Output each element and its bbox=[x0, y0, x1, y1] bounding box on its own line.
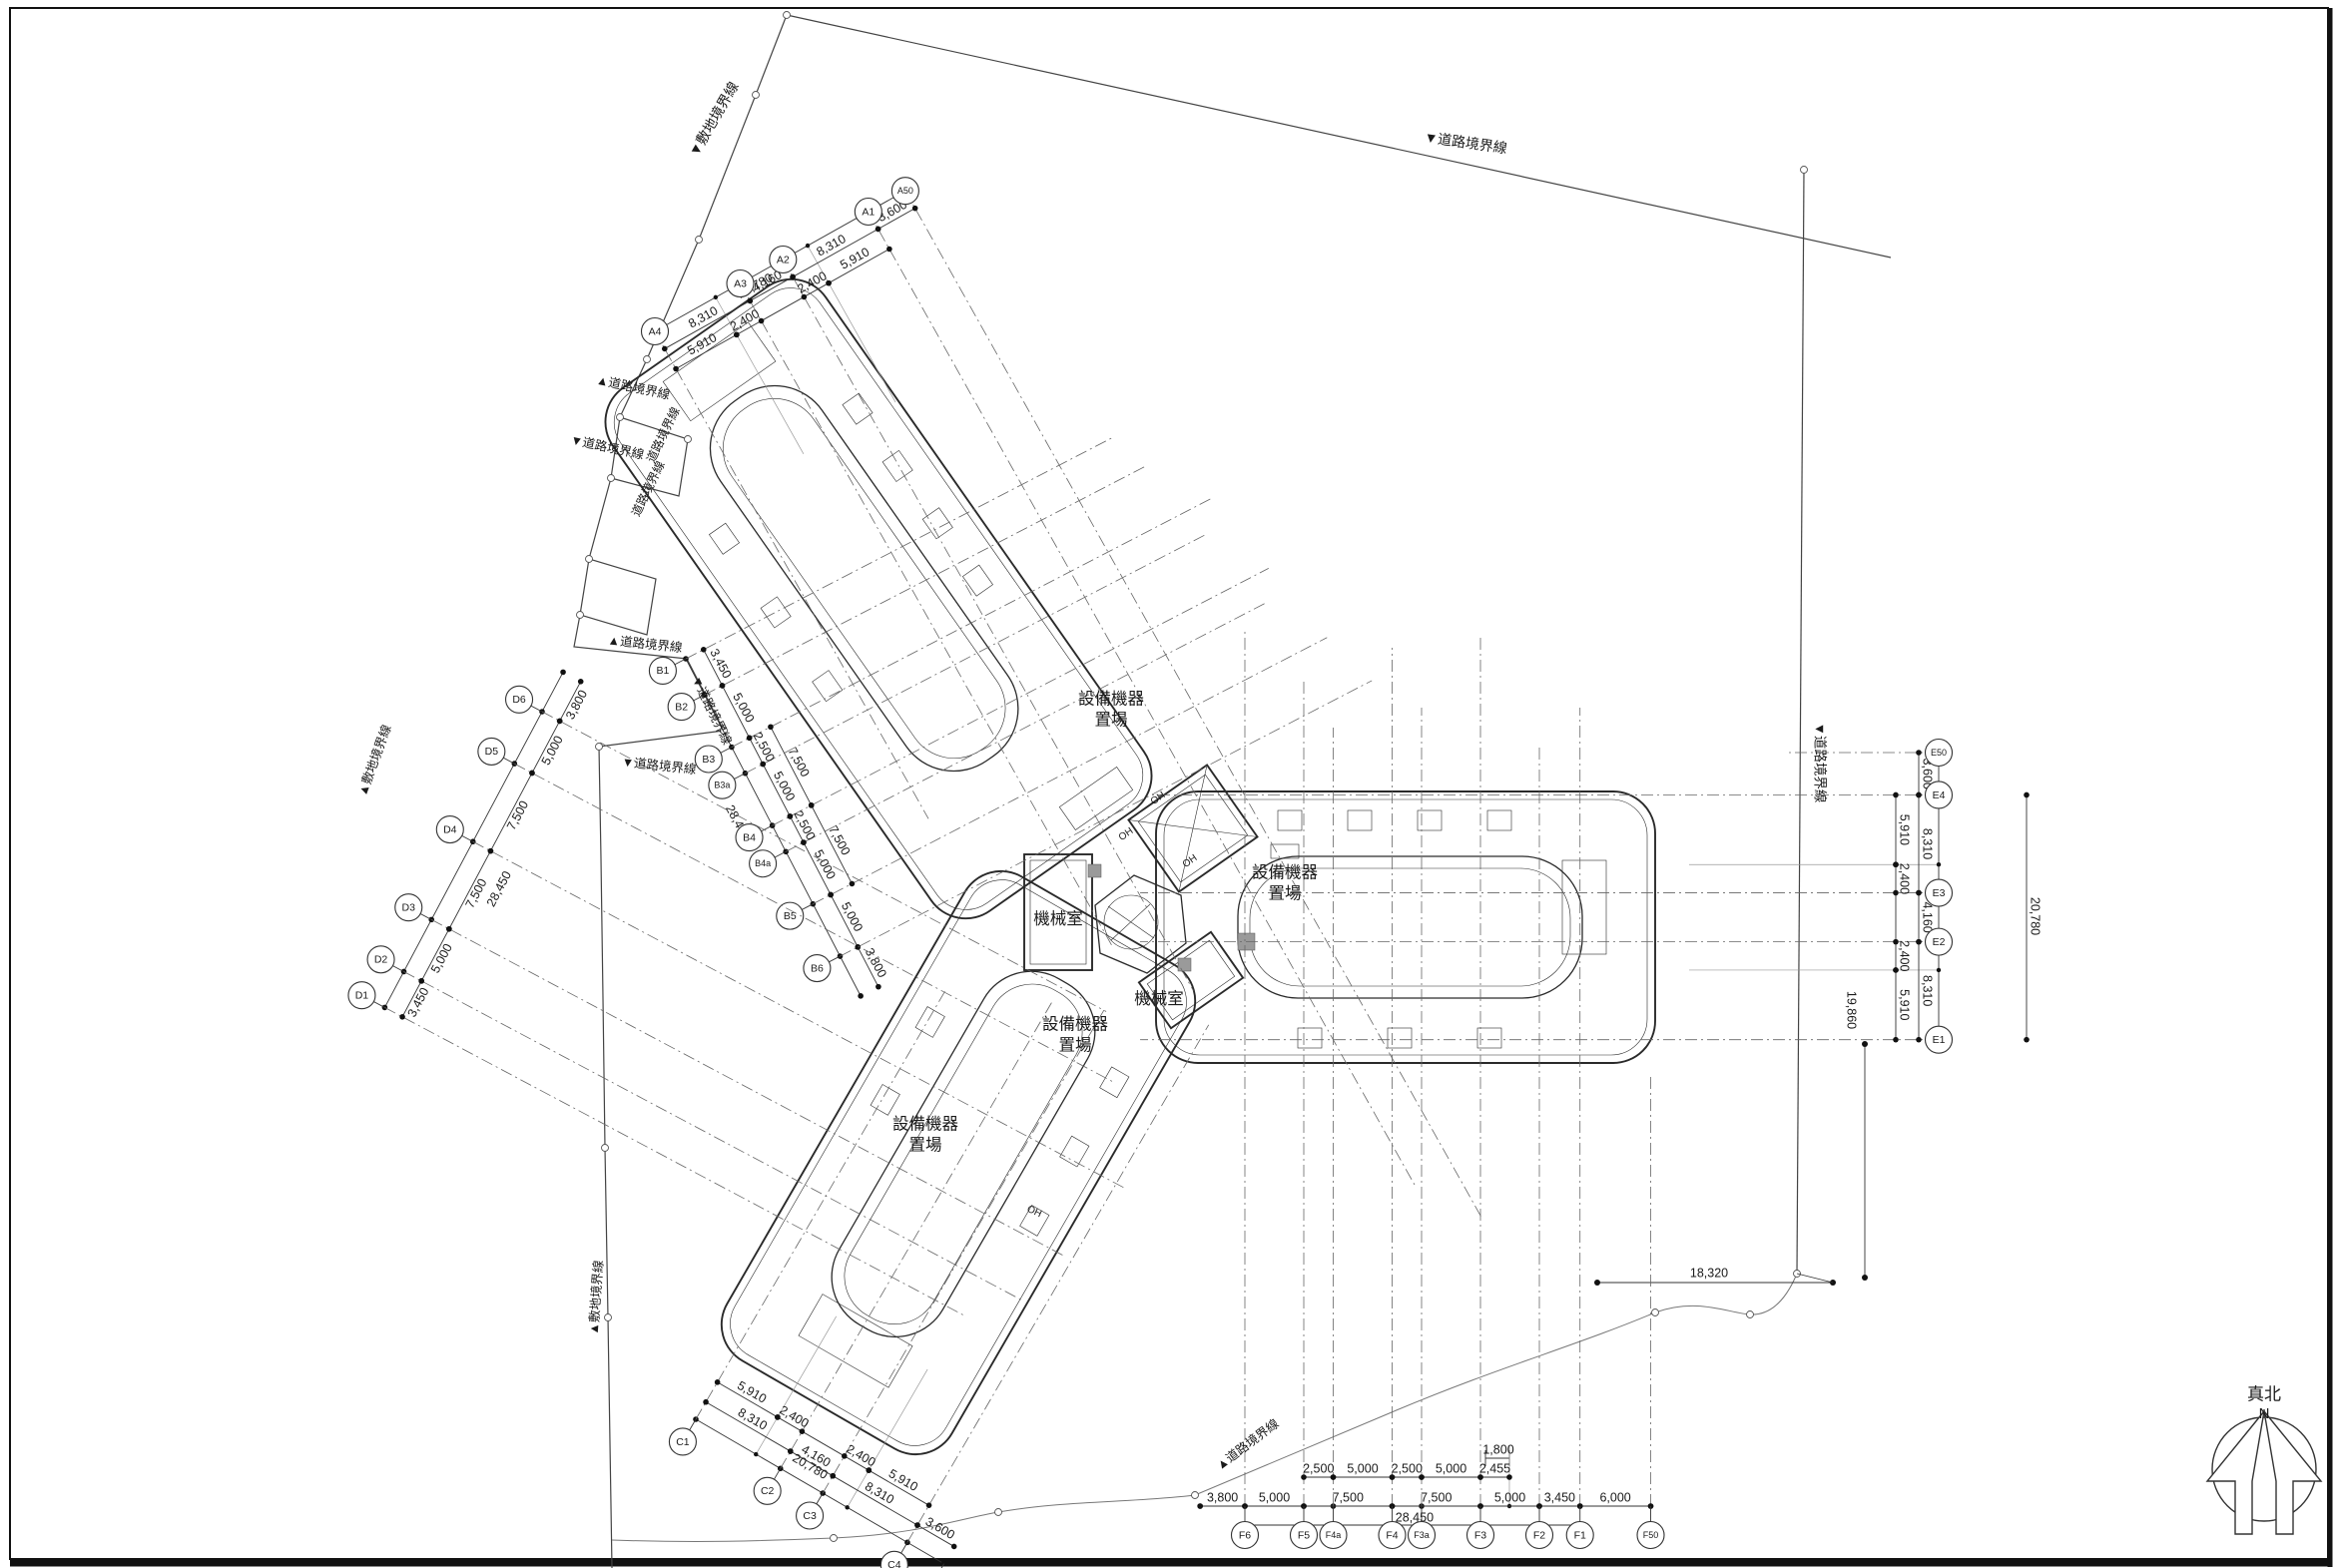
boundary-label: ▼道路境界線 bbox=[1424, 129, 1508, 157]
room-label: 設備機器置場 bbox=[1252, 863, 1319, 903]
grid-bubble-label: D3 bbox=[402, 901, 416, 913]
dim-tick bbox=[1197, 1503, 1203, 1509]
room-label: 設備機器置場 bbox=[1042, 1015, 1109, 1055]
dim-tick bbox=[754, 1452, 758, 1456]
grid-bubble-label: C4 bbox=[887, 1559, 901, 1568]
dim-tick bbox=[926, 1502, 932, 1508]
grids-and-labels: 8,3104,1608,3103,6005,9102,4002,4005,910… bbox=[348, 79, 2043, 1568]
grid-line-B5 bbox=[813, 638, 1327, 904]
dim-tick bbox=[1893, 792, 1899, 798]
dim-label: 7,500 bbox=[1421, 1490, 1452, 1504]
grid-bubble-label: C3 bbox=[803, 1510, 817, 1522]
grid-bubble-label: E4 bbox=[1933, 789, 1946, 801]
core-mark: OH bbox=[1025, 1204, 1043, 1220]
dim-tick bbox=[1893, 1037, 1899, 1043]
dim-total: 28,450 bbox=[484, 868, 514, 908]
grid-bubble-label: F1 bbox=[1574, 1529, 1586, 1541]
grid-bubble-label: F4 bbox=[1386, 1529, 1398, 1541]
dim-tick bbox=[914, 1522, 920, 1528]
grid-bubble-label: B5 bbox=[784, 910, 797, 922]
grid-bubble-label: B3 bbox=[702, 754, 715, 766]
dim-tick bbox=[1893, 967, 1899, 973]
dim-tick bbox=[715, 1379, 721, 1385]
grid-bubble-label: F3 bbox=[1474, 1529, 1486, 1541]
dim-tick bbox=[845, 1505, 849, 1509]
dim-label: 8,310 bbox=[1921, 975, 1935, 1006]
dim-tick bbox=[850, 881, 856, 887]
dim-tick bbox=[446, 926, 452, 932]
grid-line-C3 bbox=[823, 1010, 1104, 1493]
dim-label: 7,500 bbox=[504, 798, 531, 832]
grid-line-C1 bbox=[696, 988, 947, 1419]
grid-bubble-label: F2 bbox=[1533, 1529, 1545, 1541]
dim-label: 3,800 bbox=[563, 688, 590, 722]
grid-line-B4a bbox=[786, 604, 1264, 852]
grid-bubble-label: B3a bbox=[714, 781, 730, 790]
grid-bubble-label: F4a bbox=[1326, 1530, 1342, 1540]
dim-total: 28,450 bbox=[1396, 1510, 1434, 1524]
floor-plan-drawing: 真北 N 8,3104,1608,3103,6005,9102,4002,400… bbox=[0, 0, 2337, 1568]
dim-tick bbox=[858, 993, 864, 999]
grid-line-C4 bbox=[907, 1025, 1209, 1543]
dim-tick bbox=[826, 280, 832, 286]
site-dimensions bbox=[1485, 1041, 1868, 1466]
dim-tick bbox=[806, 244, 810, 248]
grid-bubble-label: F50 bbox=[1643, 1530, 1659, 1540]
dim-total: 20,780 bbox=[2029, 897, 2043, 935]
dim-tick bbox=[941, 1561, 947, 1567]
dim-label: 19,860 bbox=[1845, 991, 1859, 1029]
boundary-label: ▼道路境界線 bbox=[1812, 723, 1827, 803]
stair-hatch bbox=[1059, 767, 1132, 829]
grid-bubble-label: A4 bbox=[649, 325, 662, 337]
boundary-label: ▲敷地境界線 bbox=[354, 722, 394, 797]
boundary-label: ▲道路境界線 bbox=[595, 372, 672, 402]
dim-tick bbox=[790, 274, 796, 280]
boundary-label: ▼敷地境界線 bbox=[686, 79, 742, 160]
dim-label: 2,455 bbox=[1479, 1461, 1510, 1475]
dim-tick bbox=[828, 892, 834, 898]
dim-tick bbox=[876, 227, 881, 233]
grid-line-D1 bbox=[384, 1007, 966, 1316]
dim-tick bbox=[886, 247, 892, 253]
grid-bubble-label: D2 bbox=[374, 954, 388, 966]
boundary-label: 道路境界線 bbox=[643, 404, 683, 465]
dim-label: 6,000 bbox=[1599, 1490, 1630, 1504]
dim-tick bbox=[1937, 862, 1941, 866]
grid-bubble-label: C2 bbox=[761, 1485, 775, 1497]
dim-label: 3,450 bbox=[405, 985, 432, 1019]
dim-label: 7,500 bbox=[463, 876, 490, 910]
grid-bubble-label: F5 bbox=[1298, 1529, 1310, 1541]
grid-bubble-label: D5 bbox=[485, 746, 499, 758]
grid-bubble-label: F6 bbox=[1239, 1529, 1251, 1541]
dim-tick bbox=[399, 1014, 405, 1020]
grid-line-D2 bbox=[404, 971, 1021, 1300]
grid-line-D4 bbox=[473, 841, 1125, 1188]
grid-bubble-label: D1 bbox=[355, 989, 369, 1001]
dim-tick bbox=[2024, 1037, 2030, 1043]
north-label: 真北 bbox=[2247, 1384, 2281, 1403]
boundary-label: ▲敷地境界線 bbox=[586, 1260, 606, 1335]
grid-bubble-label: B4a bbox=[755, 858, 771, 868]
dim-label: 7,500 bbox=[1333, 1490, 1364, 1504]
dim-tick bbox=[578, 679, 584, 685]
boundary-label: ▲道路境界線 bbox=[1213, 1415, 1282, 1472]
dim-tick bbox=[557, 719, 563, 725]
dim-label: 4,160 bbox=[1921, 901, 1935, 932]
dim-label: 2,400 bbox=[1898, 940, 1912, 971]
dim-label: 1,800 bbox=[1482, 1442, 1513, 1456]
dim-tick bbox=[2024, 792, 2030, 798]
dim-tick bbox=[1916, 750, 1922, 756]
dim-label: 5,000 bbox=[428, 941, 455, 975]
dim-label: 5,910 bbox=[1898, 814, 1912, 845]
grid-bubble-label: A3 bbox=[734, 277, 747, 289]
grid-bubble-label: B1 bbox=[656, 665, 669, 677]
dim-line bbox=[718, 1382, 929, 1505]
grid-bubble-label: F3a bbox=[1414, 1530, 1430, 1540]
north-arrow: 真北 N bbox=[2207, 1384, 2321, 1534]
dim-label: 5,000 bbox=[1347, 1461, 1378, 1475]
grid-line-B3a bbox=[745, 534, 1206, 773]
north-letter: N bbox=[2259, 1405, 2270, 1422]
grid-subline bbox=[756, 1316, 836, 1454]
grid-bubble-label: A2 bbox=[777, 254, 790, 265]
room-label: 設備機器置場 bbox=[1078, 690, 1145, 730]
stair-hatch bbox=[799, 1295, 912, 1388]
dim-tick bbox=[951, 1544, 957, 1550]
dim-tick bbox=[418, 978, 424, 984]
dim-label: 2,400 bbox=[1898, 863, 1912, 894]
dim-tick bbox=[1916, 792, 1922, 798]
dim-tick bbox=[788, 1448, 794, 1454]
grid-bubble-label: E3 bbox=[1933, 887, 1946, 899]
dim-tick bbox=[560, 670, 566, 676]
grid-line-A4 bbox=[655, 331, 928, 818]
drawing-sheet: 真北 N 8,3104,1608,3103,6005,9102,4002,400… bbox=[0, 0, 2337, 1568]
grid-bubble-label: B2 bbox=[675, 701, 688, 713]
dim-tick bbox=[809, 802, 815, 808]
dim-label: 5,000 bbox=[1494, 1490, 1525, 1504]
grid-bubble-label: E2 bbox=[1933, 936, 1946, 948]
dim-label: 3,800 bbox=[1207, 1490, 1238, 1504]
dim-tick bbox=[662, 346, 668, 352]
grid-line-B1 bbox=[686, 438, 1111, 659]
dim-tick bbox=[748, 298, 754, 304]
dim-label: 5,910 bbox=[1898, 989, 1912, 1020]
grid-bubble-label: B4 bbox=[743, 831, 756, 843]
boundary-label: ▼道路境界線 bbox=[689, 674, 736, 748]
dim-label: 2,500 bbox=[1303, 1461, 1334, 1475]
dim-tick bbox=[830, 1473, 836, 1479]
dim-label: 18,320 bbox=[1690, 1266, 1728, 1280]
boundary-label: 道路境界線 bbox=[628, 458, 668, 519]
dim-tick bbox=[701, 647, 707, 653]
dim-label: 5,000 bbox=[1436, 1461, 1466, 1475]
dim-tick bbox=[1916, 1037, 1922, 1043]
dim-tick bbox=[703, 1399, 709, 1405]
dim-tick bbox=[912, 206, 918, 212]
grid-line-D3 bbox=[431, 919, 1066, 1257]
dim-tick bbox=[673, 366, 679, 372]
room-label: 機械室 bbox=[1033, 909, 1083, 928]
grid-line-B3 bbox=[732, 499, 1210, 748]
grid-bubble-label: D4 bbox=[443, 823, 457, 835]
dim-label: 2,500 bbox=[1392, 1461, 1423, 1475]
dim-tick bbox=[1937, 968, 1941, 972]
boundary-label: ▼道路境界線 bbox=[621, 754, 698, 777]
stair-hatch bbox=[663, 322, 776, 421]
dim-label: 3,450 bbox=[1544, 1490, 1575, 1504]
grid-bubble-label: E50 bbox=[1931, 748, 1947, 758]
grid-bubble-label: C1 bbox=[676, 1436, 690, 1448]
dim-label: 8,310 bbox=[1921, 828, 1935, 859]
dim-tick bbox=[1916, 890, 1922, 896]
core-mark: OH bbox=[1117, 825, 1136, 843]
dim-tick bbox=[876, 984, 881, 990]
grid-line-A2 bbox=[783, 260, 1193, 991]
room-label: 設備機器置場 bbox=[892, 1115, 959, 1155]
dim-tick bbox=[529, 771, 535, 777]
dim-label: 5,000 bbox=[539, 734, 566, 768]
room-label: 機械室 bbox=[1134, 989, 1184, 1008]
machine-room-2 bbox=[1139, 932, 1243, 1028]
dim-tick bbox=[866, 1467, 872, 1473]
dim-tick bbox=[714, 295, 718, 299]
site-boundary bbox=[574, 12, 1891, 1568]
grid-bubble-label: B6 bbox=[811, 962, 824, 974]
dim-tick bbox=[760, 762, 766, 768]
grid-bubble-label: A50 bbox=[897, 186, 913, 196]
grid-line-B4 bbox=[773, 568, 1269, 825]
dim-tick bbox=[488, 848, 494, 854]
grid-line-B2 bbox=[705, 465, 1148, 695]
grid-bubble-label: E1 bbox=[1933, 1034, 1946, 1046]
dim-label: 5,000 bbox=[1259, 1490, 1290, 1504]
grid-bubble-label: D6 bbox=[512, 694, 526, 706]
dim-tick bbox=[1331, 1474, 1337, 1480]
dim-tick bbox=[801, 839, 807, 845]
dim-tick bbox=[1419, 1474, 1425, 1480]
dim-tick bbox=[1916, 939, 1922, 945]
grid-line-C2 bbox=[781, 1003, 1052, 1469]
grid-bubble-label: A1 bbox=[862, 206, 875, 218]
core-mark: OH bbox=[1181, 852, 1200, 870]
dim-tick bbox=[720, 683, 726, 689]
dim-tick bbox=[768, 724, 774, 730]
